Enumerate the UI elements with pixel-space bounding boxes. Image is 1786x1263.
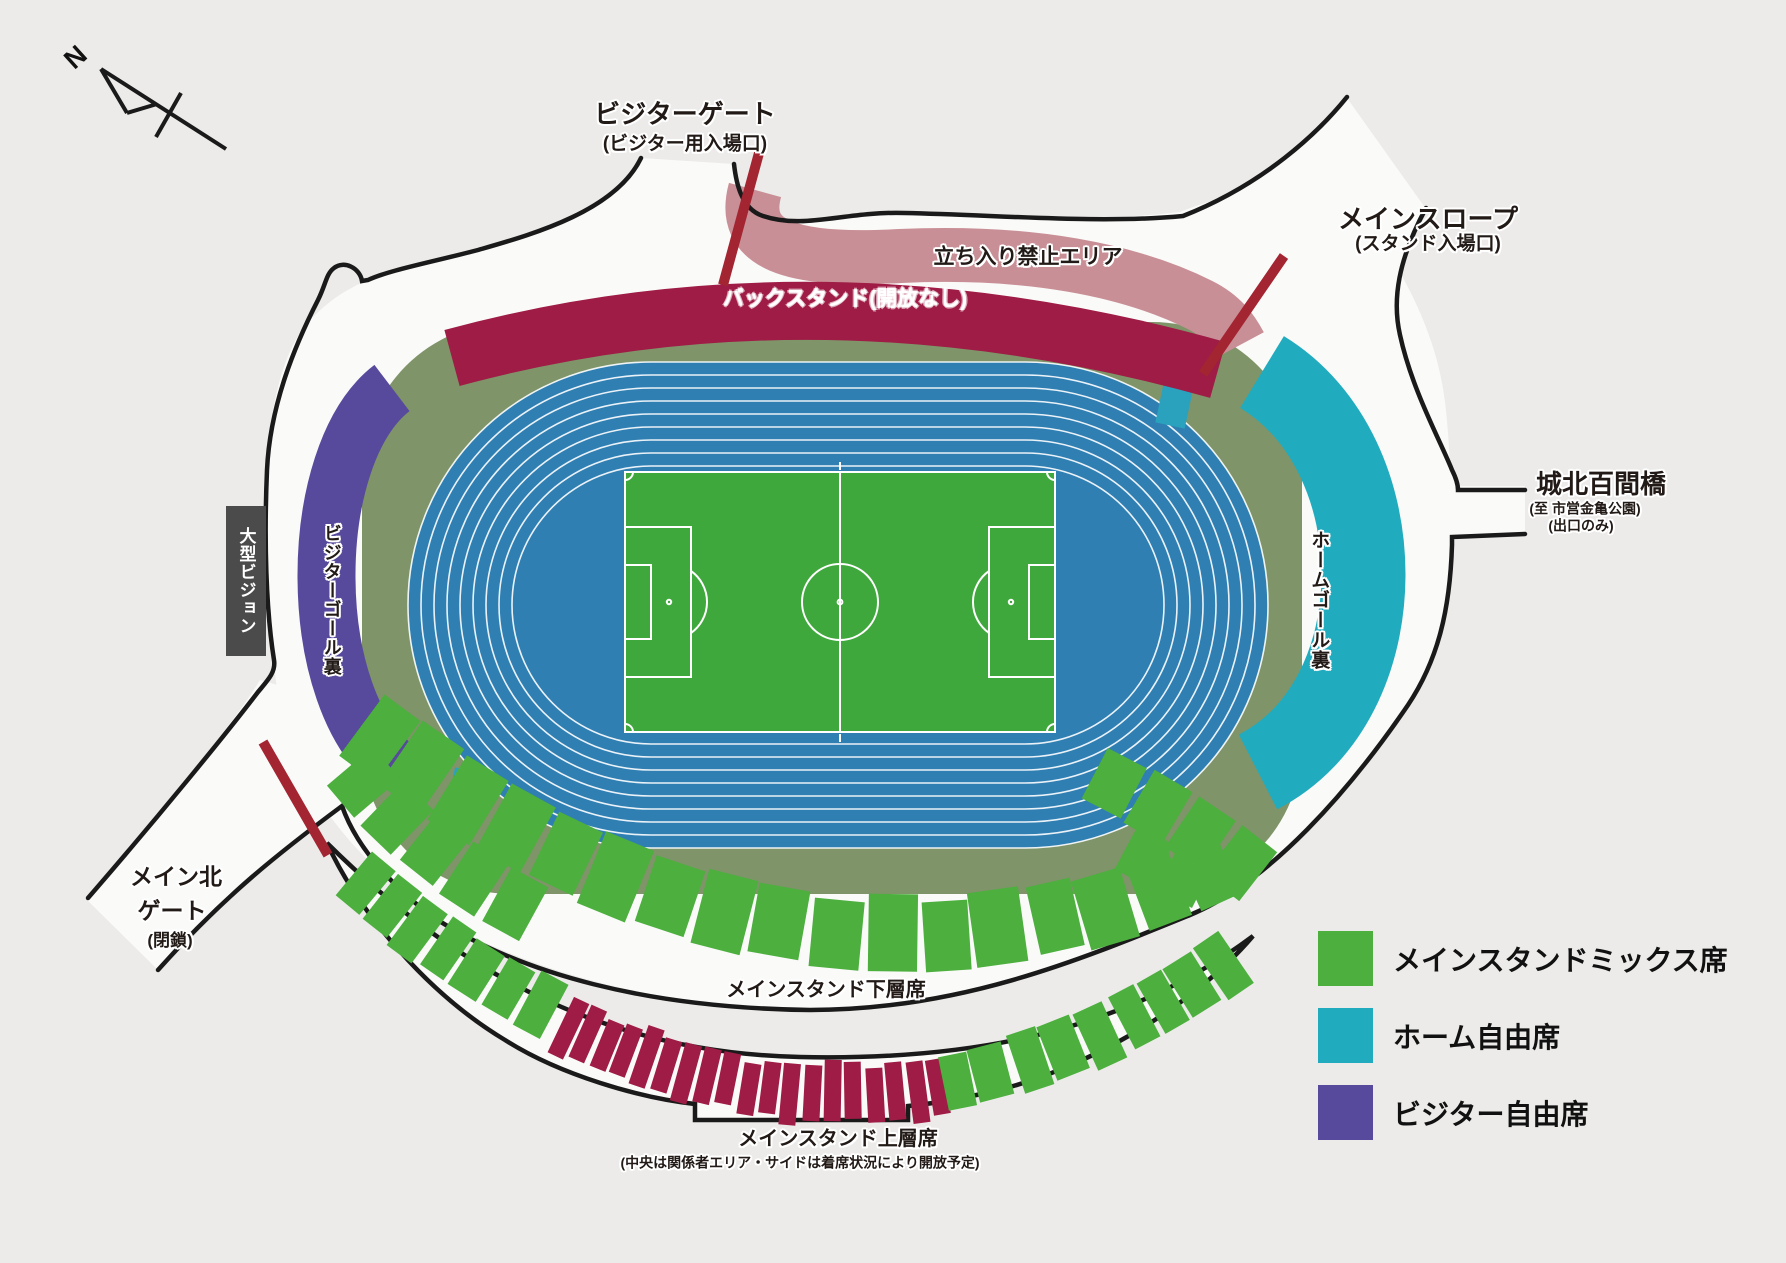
bridge-sublabel-2: (出口のみ) (1548, 518, 1613, 533)
visitor-gate-sublabel: (ビジター用入場口) (603, 135, 767, 156)
legend-label: ビジター自由席 (1393, 1093, 1588, 1133)
home-goal-back-label: ホームゴール裏 (1308, 530, 1329, 670)
legend-swatch (1318, 931, 1373, 986)
legend-label: メインスタンドミックス席 (1393, 939, 1728, 979)
upper-stand-label: メインスタンド上層席 (738, 1129, 938, 1151)
legend-item-2: ビジター自由席 (1318, 1085, 1728, 1140)
north-gate-label-3: (閉鎖) (147, 932, 192, 950)
legend-label: ホーム自由席 (1393, 1016, 1560, 1056)
visitor-gate-label: ビジターゲート (594, 100, 775, 128)
bridge-label: 城北百間橋 (1536, 470, 1666, 498)
main-slope-sublabel: (スタンド入場口) (1355, 235, 1501, 256)
legend-swatch (1318, 1085, 1373, 1140)
stadium-map: N ビジターゲート (ビジター用入場口) メインスロープ (スタンド入場口) 立… (0, 0, 1786, 1263)
legend-swatch (1318, 1008, 1373, 1063)
legend-item-0: メインスタンドミックス席 (1318, 931, 1728, 986)
upper-stand-note: (中央は関係者エリア・サイドは着席状況により開放予定) (620, 1155, 979, 1170)
legend-item-1: ホーム自由席 (1318, 1008, 1728, 1063)
lower-stand-label: メインスタンド下層席 (726, 980, 926, 1002)
bridge-sublabel-1: (至 市営金亀公園) (1529, 501, 1640, 516)
main-slope-label: メインスロープ (1338, 205, 1518, 233)
no-entry-area-label: 立ち入り禁止エリア (934, 247, 1123, 270)
big-vision-screen: 大型ビジョン (226, 506, 266, 656)
back-stand-label: バックスタンド(開放なし) (723, 289, 967, 312)
big-vision-label: 大型ビジョン (234, 527, 259, 635)
visitor-goal-back-label: ビジターゴール裏 (321, 524, 340, 676)
north-gate-label-1: メイン北 (130, 865, 222, 890)
football-pitch (625, 462, 1055, 742)
legend: メインスタンドミックス席ホーム自由席ビジター自由席 (1318, 931, 1728, 1162)
north-gate-label-2: ゲート (138, 899, 207, 924)
